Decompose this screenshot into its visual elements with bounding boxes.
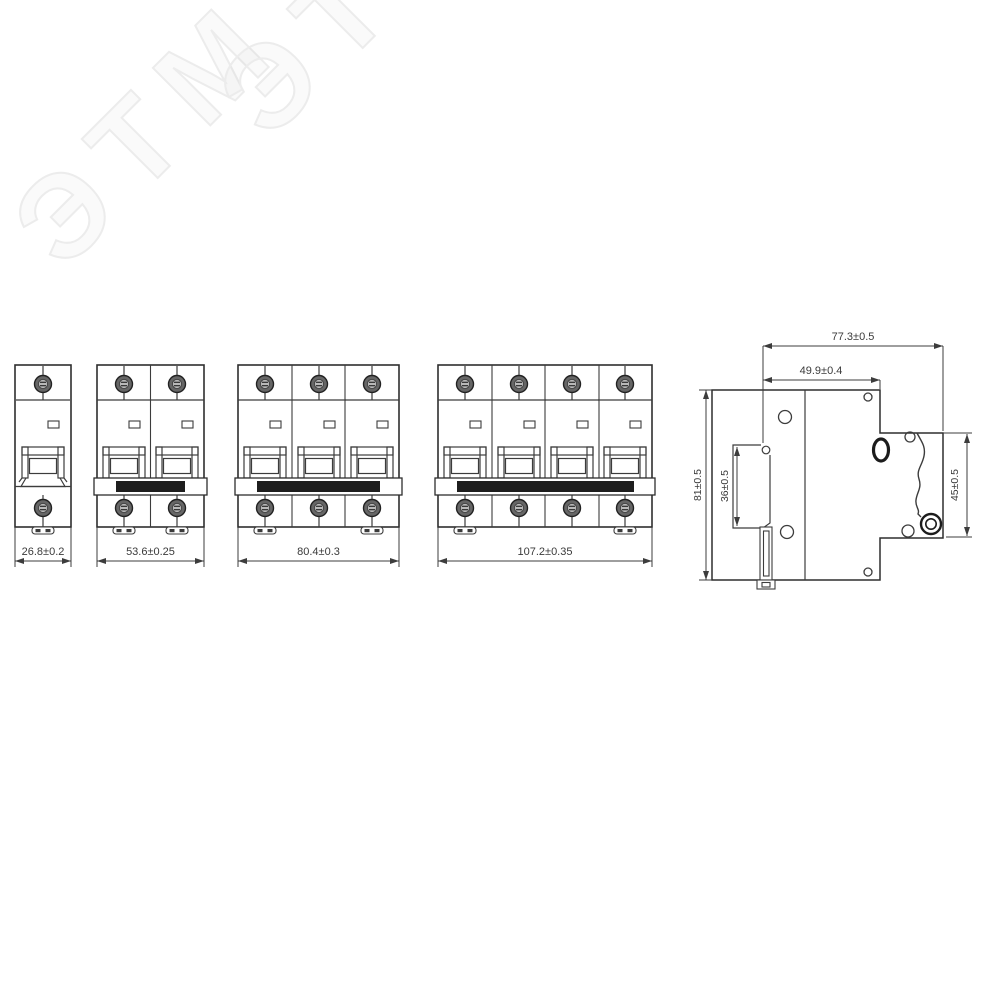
wire-entry-hole — [874, 439, 889, 461]
breaker-4p-front-view: 107.2±0.35 — [435, 365, 655, 567]
handle-tie-bar — [116, 481, 185, 492]
breaker-side-view: 77.3±0.5 49.9±0.4 81±0.5 36±0.5 45±0.5 — [692, 331, 972, 589]
side-dimensions — [706, 346, 972, 580]
rivet-holes — [779, 393, 873, 576]
drawing-canvas: ЭТМ ЭТМ — [0, 0, 1000, 1000]
breaker-1p-front-view: 26.8±0.2 — [15, 365, 71, 567]
dimension-label-recess: 36±0.5 — [719, 470, 731, 502]
din-rail-recess — [733, 445, 770, 528]
breaker-2p-front-view: 53.6±0.25 — [94, 365, 207, 567]
dimension-label-front: 45±0.5 — [949, 469, 961, 501]
handle-tie-bar — [257, 481, 380, 492]
dimension-label-1p: 26.8±0.2 — [22, 546, 65, 558]
dimension-label-2p: 53.6±0.25 — [126, 546, 175, 558]
dimension-label-height: 81±0.5 — [692, 469, 704, 501]
terminal-detail — [902, 432, 941, 537]
dimension-label-depth-body: 49.9±0.4 — [800, 365, 843, 377]
side-body-outline — [712, 390, 943, 580]
technical-drawing: 26.8±0.2 53.6±0.25 — [0, 0, 1000, 1000]
handle-tie-bar — [457, 481, 634, 492]
dimension-label-4p: 107.2±0.35 — [518, 546, 573, 558]
din-clip — [757, 527, 775, 589]
dimension-label-3p: 80.4±0.3 — [297, 546, 340, 558]
dimension-label-depth-total: 77.3±0.5 — [832, 331, 875, 343]
breaker-3p-front-view: 80.4±0.3 — [235, 365, 402, 567]
